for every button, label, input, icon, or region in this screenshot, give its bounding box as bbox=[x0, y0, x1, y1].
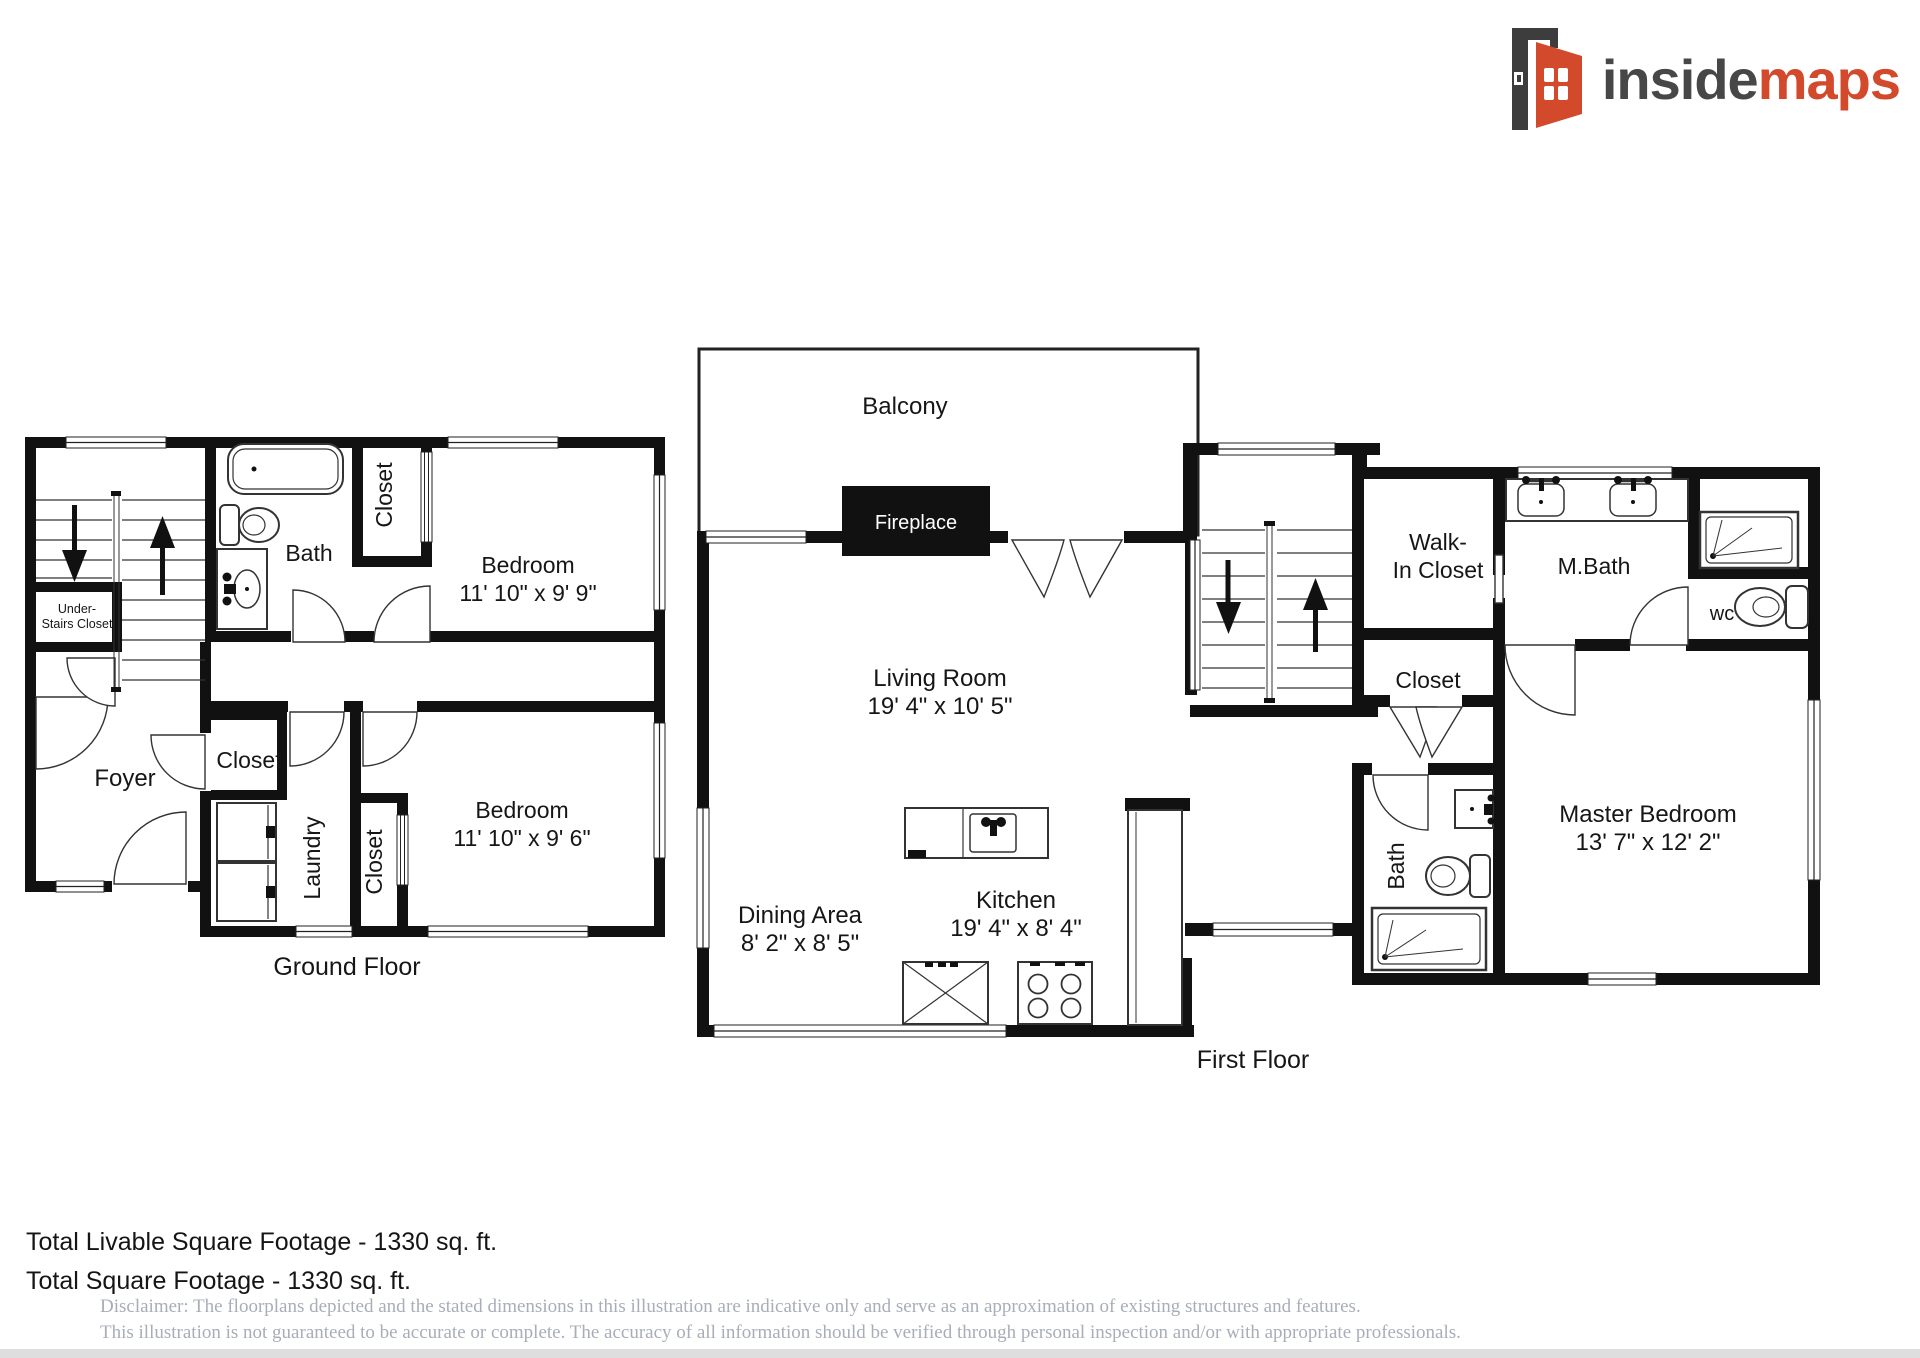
fireplace-label: Fireplace bbox=[875, 512, 957, 534]
kitchen-label: Kitchen bbox=[976, 887, 1056, 914]
kitchen-dims: 19' 4" x 8' 4" bbox=[950, 915, 1082, 942]
french-door-right bbox=[1070, 540, 1122, 597]
disclaimer-line1: Disclaimer: The floorplans depicted and … bbox=[100, 1294, 1461, 1320]
sink-icon bbox=[217, 549, 267, 629]
first-bath-label: Bath bbox=[1383, 842, 1409, 889]
total-livable-sqft: Total Livable Square Footage - 1330 sq. … bbox=[26, 1228, 497, 1257]
bottom-edge-strip bbox=[0, 1349, 1920, 1358]
living-room-label: Living Room bbox=[873, 665, 1006, 692]
walkin-door-leaf bbox=[1495, 555, 1503, 603]
closet-lower-label: Closet bbox=[361, 829, 387, 895]
walkin-closet-label-line1: Walk- bbox=[1409, 529, 1467, 555]
first-floor-caption: First Floor bbox=[1197, 1046, 1310, 1074]
toilet-icon bbox=[1426, 855, 1490, 897]
ground-floor-caption: Ground Floor bbox=[273, 953, 420, 981]
bedroom1-dims: 11' 10" x 9' 9" bbox=[459, 580, 596, 606]
stairs-up-arrow-icon bbox=[150, 516, 175, 595]
first-stairs bbox=[1202, 521, 1352, 703]
disclaimer-line2: This illustration is not guaranteed to b… bbox=[100, 1320, 1461, 1346]
wc-label: wc bbox=[1709, 603, 1734, 625]
first-door-swings bbox=[1012, 540, 1688, 830]
bath-door bbox=[1373, 775, 1428, 830]
floorplan-page: insidemaps bbox=[0, 0, 1920, 1358]
sink-icon bbox=[1455, 790, 1495, 828]
fireplace: Fireplace bbox=[842, 486, 990, 556]
under-stairs-closet-label-line2: Stairs Closet bbox=[42, 617, 113, 631]
toilet-icon bbox=[220, 505, 279, 545]
master-bedroom-label: Master Bedroom bbox=[1559, 801, 1736, 828]
closet-top-label: Closet bbox=[371, 462, 397, 528]
ground-floor-plan: Under- Stairs Closet Bath Closet Bedroom… bbox=[25, 437, 665, 981]
stairs-up-arrow-icon bbox=[1303, 578, 1328, 652]
master-bedroom-dims: 13' 7" x 12' 2" bbox=[1576, 829, 1721, 856]
closet-hall-label: Closet bbox=[216, 747, 282, 773]
closet-label: Closet bbox=[1395, 667, 1461, 693]
dishwasher-icon bbox=[903, 962, 988, 1024]
mbath-label: M.Bath bbox=[1558, 553, 1631, 579]
bathtub-icon bbox=[228, 444, 343, 494]
french-door-left bbox=[1012, 540, 1064, 597]
bedroom2-dims: 11' 10" x 9' 6" bbox=[453, 825, 590, 851]
stairs-down-arrow-icon bbox=[1216, 560, 1241, 634]
dining-area-label: Dining Area bbox=[738, 902, 863, 929]
shower-icon bbox=[1700, 512, 1798, 568]
balcony-label: Balcony bbox=[862, 393, 947, 420]
master-door bbox=[1505, 645, 1575, 715]
kitchen-island-sink-icon bbox=[905, 808, 1048, 858]
double-sink-vanity-icon bbox=[1506, 476, 1688, 521]
walkin-closet-label-line2: In Closet bbox=[1393, 557, 1484, 583]
bath-label: Bath bbox=[285, 540, 332, 566]
first-floor-plan: Fireplace bbox=[697, 349, 1820, 1074]
mbath-door bbox=[1630, 587, 1688, 645]
wc-toilet-icon bbox=[1735, 586, 1808, 628]
kitchen-counter bbox=[1128, 810, 1182, 1025]
stove-icon bbox=[1018, 962, 1092, 1024]
stair-rail bbox=[1264, 521, 1275, 703]
stairs-down-arrow-icon bbox=[62, 505, 87, 582]
washer-dryer-icons bbox=[217, 803, 276, 921]
bedroom2-label: Bedroom bbox=[475, 797, 568, 823]
dining-area-dims: 8' 2" x 8' 5" bbox=[741, 930, 859, 957]
living-room-dims: 19' 4" x 10' 5" bbox=[868, 693, 1013, 720]
disclaimer: Disclaimer: The floorplans depicted and … bbox=[100, 1294, 1461, 1346]
under-stairs-closet-label-line1: Under- bbox=[58, 602, 96, 616]
total-sqft: Total Square Footage - 1330 sq. ft. bbox=[26, 1267, 497, 1296]
laundry-label: Laundry bbox=[299, 816, 325, 900]
shower-icon bbox=[1372, 908, 1486, 970]
floorplan-canvas: Under- Stairs Closet Bath Closet Bedroom… bbox=[0, 0, 1920, 1358]
foyer-label: Foyer bbox=[94, 765, 155, 792]
bedroom1-label: Bedroom bbox=[481, 552, 574, 578]
